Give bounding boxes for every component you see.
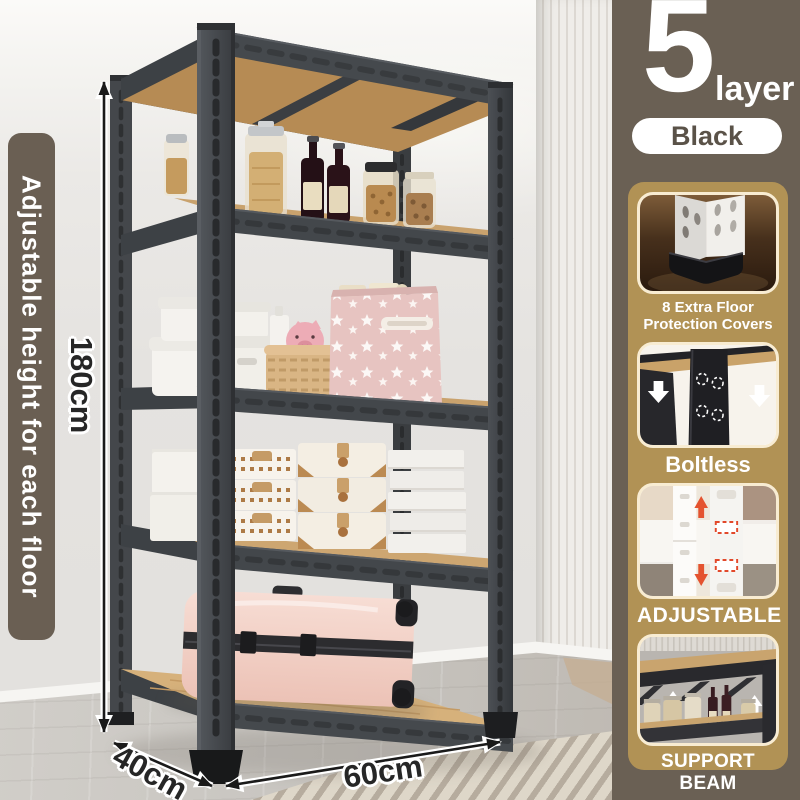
feature-caption-floor-protection: 8 Extra Floor Protection Covers xyxy=(637,299,779,334)
layer-unit-label: layer xyxy=(715,70,794,109)
side-banner-text: Adjustable height for each floor xyxy=(19,175,45,598)
small-grain-jar xyxy=(164,134,189,196)
caption-line: ADJUSTABLE xyxy=(637,604,779,628)
side-banner: Adjustable height for each floor xyxy=(8,133,55,640)
feature-caption-boltless: Boltless xyxy=(637,452,779,477)
feature-image-adjustable xyxy=(637,483,779,599)
feature-caption-adjustable: ADJUSTABLE xyxy=(637,604,779,628)
star-storage-cube xyxy=(329,283,442,405)
right-column: 5 layer Black xyxy=(612,0,800,800)
color-variant-pill: Black xyxy=(632,118,782,154)
clasp-suitcase-boxes xyxy=(298,443,386,549)
support-beam-illustration xyxy=(640,637,776,743)
caption-line: Boltless xyxy=(637,452,779,477)
thin-white-boxes xyxy=(388,450,466,553)
caption-line: Protection Covers xyxy=(637,316,779,333)
tier2-front-beam xyxy=(197,205,513,262)
large-grain-jar xyxy=(245,121,287,218)
height-dimension-label: 180cm xyxy=(63,337,99,434)
photo-scene: 180cm 40cm 60cm Adjustable height for ea… xyxy=(0,0,612,800)
color-variant-label: Black xyxy=(671,121,743,151)
walnut-jar xyxy=(403,172,436,228)
adjustable-illustration xyxy=(640,486,776,596)
ornate-pattern-boxes xyxy=(228,449,296,541)
feature-panel: 8 Extra Floor Protection Covers xyxy=(628,182,788,770)
nut-jar xyxy=(363,162,399,225)
caption-line: 8 Extra Floor xyxy=(637,299,779,316)
caption-line: SUPPORT BEAM xyxy=(637,751,779,795)
front-left-post xyxy=(189,23,243,784)
floor-protection-illustration xyxy=(640,195,776,291)
product-image: 180cm 40cm 60cm Adjustable height for ea… xyxy=(0,0,800,800)
feature-image-floor-protection xyxy=(637,192,779,294)
shelf-tier-1 xyxy=(121,26,513,152)
boltless-illustration xyxy=(640,345,776,445)
layer-count: 5 xyxy=(642,0,715,112)
wine-bottles xyxy=(301,136,350,223)
tier3-items xyxy=(149,283,442,405)
front-right-post xyxy=(483,82,518,738)
feature-image-boltless xyxy=(637,342,779,448)
layer-badge: 5 layer Black xyxy=(612,0,800,186)
feature-image-support-beam xyxy=(637,634,779,746)
feature-caption-support-beam: SUPPORT BEAM xyxy=(637,751,779,795)
